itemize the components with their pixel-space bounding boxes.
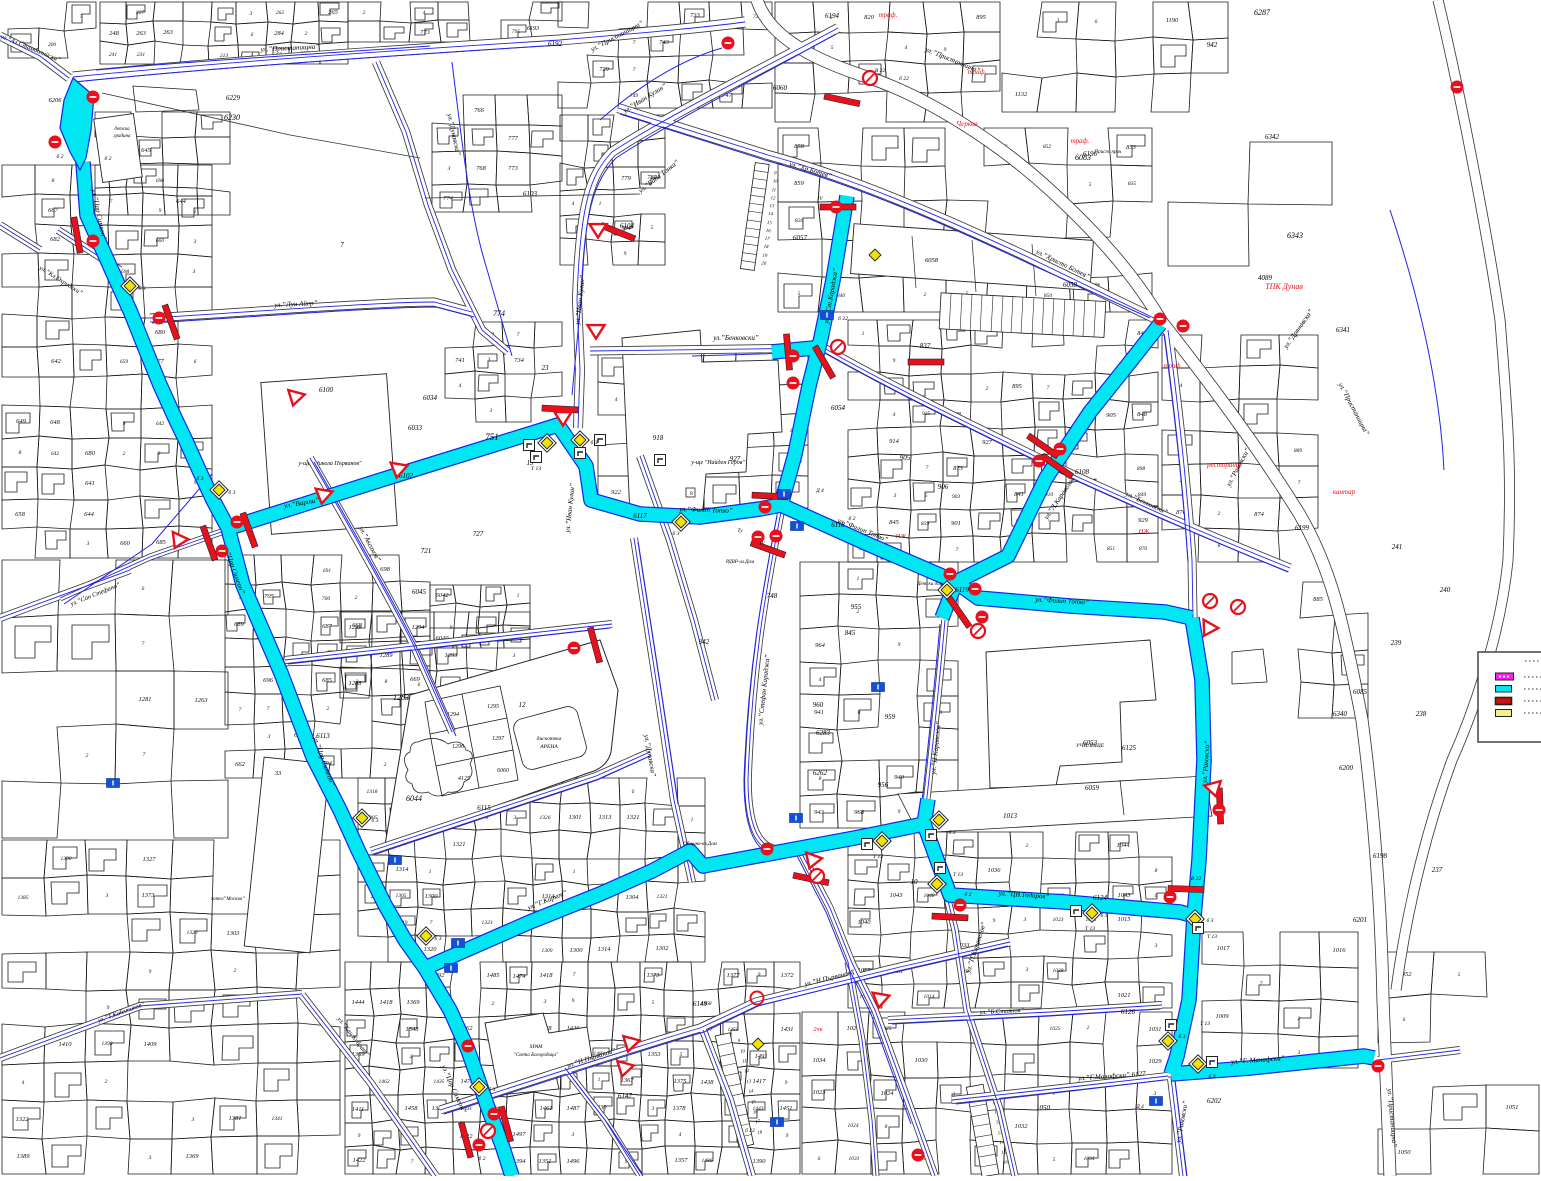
svg-text:927: 927 — [982, 439, 993, 446]
svg-text:Д 4: Д 4 — [1135, 1103, 1144, 1110]
svg-text:6340: 6340 — [1333, 710, 1348, 718]
svg-text:3: 3 — [543, 999, 547, 1005]
svg-text:б 3: б 3 — [1209, 1073, 1216, 1080]
svg-text:859: 859 — [794, 180, 805, 187]
svg-text:1411: 1411 — [352, 1106, 365, 1113]
svg-text:9: 9 — [898, 642, 901, 648]
svg-text:1032: 1032 — [1015, 1123, 1029, 1130]
svg-text:9: 9 — [107, 1005, 110, 1011]
svg-text:1418: 1418 — [540, 972, 554, 979]
svg-text:2: 2 — [305, 31, 308, 37]
svg-text:3: 3 — [1023, 917, 1027, 923]
svg-text:263: 263 — [163, 29, 174, 36]
svg-text:685: 685 — [322, 677, 333, 684]
svg-text:698: 698 — [380, 566, 391, 573]
svg-text:1: 1 — [194, 209, 197, 215]
svg-text:3: 3 — [105, 893, 109, 899]
svg-text:959: 959 — [885, 713, 896, 721]
svg-text:733: 733 — [690, 12, 701, 19]
svg-text:6: 6 — [632, 789, 635, 795]
svg-text:8: 8 — [885, 1124, 888, 1130]
svg-text:4: 4 — [893, 411, 896, 418]
svg-text:3: 3 — [447, 166, 451, 172]
svg-text:852: 852 — [1043, 144, 1052, 150]
svg-text:1305: 1305 — [396, 893, 407, 899]
svg-text:1373: 1373 — [142, 892, 156, 899]
svg-text:б 3: б 3 — [1101, 912, 1108, 919]
svg-text:3: 3 — [489, 408, 493, 414]
svg-text:1295: 1295 — [487, 704, 499, 710]
svg-text:903: 903 — [952, 494, 961, 500]
svg-text:1385: 1385 — [18, 895, 29, 901]
svg-text:3: 3 — [1154, 943, 1158, 949]
svg-text:1314: 1314 — [598, 946, 612, 953]
svg-text:9: 9 — [358, 1133, 361, 1139]
svg-text:Д 4: Д 4 — [815, 487, 824, 494]
svg-text:6192: 6192 — [548, 40, 563, 48]
svg-text:231: 231 — [137, 52, 146, 58]
svg-text:238: 238 — [1416, 710, 1427, 718]
svg-text:1038: 1038 — [1053, 968, 1064, 974]
svg-text:5: 5 — [1089, 182, 1092, 188]
svg-text:6104: 6104 — [620, 222, 635, 230]
svg-text:1025: 1025 — [1050, 1026, 1061, 1032]
svg-text:1375: 1375 — [674, 1078, 688, 1085]
svg-text:б 2: б 2 — [57, 153, 64, 160]
svg-text:6060: 6060 — [497, 768, 509, 774]
svg-text:1190: 1190 — [1166, 17, 1179, 24]
svg-text:648: 648 — [50, 419, 61, 426]
svg-text:4: 4 — [572, 200, 575, 207]
svg-text:649: 649 — [16, 418, 27, 425]
svg-text:644: 644 — [176, 198, 187, 205]
svg-text:1409: 1409 — [144, 1041, 158, 1048]
svg-text:658: 658 — [15, 511, 26, 518]
svg-text:1474: 1474 — [513, 973, 527, 980]
svg-text:траф.: траф. — [1071, 137, 1090, 145]
svg-text:1: 1 — [598, 1077, 601, 1083]
svg-text:6149: 6149 — [693, 1000, 708, 1008]
svg-text:8: 8 — [52, 178, 55, 184]
svg-text:1029: 1029 — [1149, 1058, 1163, 1065]
svg-text:6042: 6042 — [436, 592, 450, 599]
svg-text:2: 2 — [1026, 843, 1029, 849]
svg-text:10: 10 — [911, 878, 919, 886]
svg-text:751: 751 — [485, 432, 499, 442]
svg-text:1288: 1288 — [349, 680, 363, 687]
svg-text:Т 13: Т 13 — [873, 854, 883, 860]
svg-text:4: 4 — [423, 9, 426, 16]
svg-text:Т 13: Т 13 — [1207, 934, 1217, 940]
svg-text:1462: 1462 — [379, 1078, 390, 1085]
svg-text:градина: градина — [114, 134, 131, 139]
svg-text:6: 6 — [818, 1156, 821, 1162]
svg-text:1: 1 — [517, 593, 520, 599]
svg-text:1327: 1327 — [143, 856, 157, 863]
svg-text:Детски дом: Детски дом — [916, 582, 943, 587]
svg-text:4: 4 — [459, 382, 462, 389]
svg-text:682: 682 — [50, 236, 61, 243]
svg-text:6115: 6115 — [477, 804, 491, 812]
svg-text:4: 4 — [615, 396, 618, 403]
svg-text:858: 858 — [794, 143, 805, 150]
svg-text:905: 905 — [1106, 412, 1117, 419]
svg-text:4: 4 — [905, 44, 908, 51]
svg-text:б 3: б 3 — [591, 439, 598, 446]
svg-text:1309: 1309 — [542, 948, 553, 954]
svg-text:1016: 1016 — [1333, 947, 1347, 954]
svg-text:1461: 1461 — [540, 1105, 553, 1112]
svg-text:6054: 6054 — [831, 404, 846, 412]
svg-text:6343: 6343 — [1287, 231, 1303, 240]
svg-text:1031: 1031 — [849, 1156, 860, 1162]
svg-text:1418: 1418 — [380, 999, 394, 1006]
svg-text:Община-кв.Дом: Община-кв.Дом — [683, 842, 717, 847]
svg-text:1024: 1024 — [881, 1090, 895, 1097]
svg-text:ХРАМ: ХРАМ — [529, 1045, 544, 1050]
svg-text:6262: 6262 — [813, 769, 828, 777]
svg-text:1: 1 — [599, 201, 602, 207]
svg-text:667: 667 — [48, 207, 59, 214]
svg-text:7: 7 — [80, 14, 83, 20]
svg-text:6119: 6119 — [955, 586, 969, 594]
svg-text:1034: 1034 — [1084, 1155, 1095, 1162]
svg-text:4089: 4089 — [1258, 274, 1273, 282]
svg-text:922: 922 — [611, 489, 622, 496]
svg-text:2: 2 — [410, 1054, 413, 1060]
svg-text:6034: 6034 — [423, 394, 438, 402]
svg-text:6: 6 — [418, 682, 421, 688]
svg-text:6060: 6060 — [773, 84, 788, 92]
svg-text:748: 748 — [767, 592, 778, 600]
svg-text:6044: 6044 — [406, 794, 422, 803]
svg-text:889: 889 — [1294, 448, 1303, 454]
svg-text:дискотека: дискотека — [537, 735, 562, 742]
svg-text:239: 239 — [1391, 639, 1402, 647]
svg-text:2: 2 — [986, 386, 989, 392]
svg-text:3: 3 — [191, 1117, 195, 1123]
svg-text:773: 773 — [508, 165, 519, 172]
svg-text:IV: IV — [816, 196, 823, 202]
svg-text:6057: 6057 — [793, 234, 808, 242]
svg-text:721: 721 — [421, 547, 432, 555]
svg-text:1341: 1341 — [272, 1115, 283, 1122]
svg-text:1496: 1496 — [567, 1158, 581, 1165]
svg-text:б 22: б 22 — [838, 315, 848, 322]
svg-text:б 2: б 2 — [849, 515, 856, 522]
svg-text:1323: 1323 — [482, 920, 493, 926]
svg-text:8: 8 — [385, 679, 388, 685]
svg-text:1373: 1373 — [647, 972, 661, 979]
svg-text:б 3: б 3 — [435, 935, 442, 942]
svg-text:4: 4 — [22, 1079, 25, 1086]
svg-text:1410: 1410 — [59, 1041, 73, 1048]
svg-text:7: 7 — [956, 547, 959, 553]
svg-text:841: 841 — [1014, 491, 1024, 498]
svg-text:6117: 6117 — [633, 512, 647, 520]
svg-text:2чк: 2чк — [813, 1026, 823, 1033]
svg-text:6342: 6342 — [1265, 133, 1280, 141]
svg-text:ТПК Дунав: ТПК Дунав — [1265, 282, 1303, 291]
svg-text:906: 906 — [938, 483, 949, 491]
svg-text:641: 641 — [85, 480, 95, 487]
svg-text:2: 2 — [355, 595, 358, 601]
svg-text:6: 6 — [142, 586, 145, 592]
svg-text:1326: 1326 — [540, 815, 551, 821]
svg-text:1491: 1491 — [755, 1053, 768, 1060]
svg-text:200: 200 — [48, 42, 57, 48]
svg-text:3: 3 — [487, 357, 491, 363]
svg-text:б 3: б 3 — [139, 285, 146, 292]
svg-text:227: 227 — [136, 10, 145, 16]
svg-text:6108: 6108 — [1075, 468, 1090, 476]
svg-text:детска: детска — [114, 127, 130, 132]
svg-text:9: 9 — [624, 251, 627, 257]
svg-text:6045: 6045 — [412, 588, 427, 596]
svg-text:845: 845 — [845, 629, 856, 637]
svg-text:АРЕНА: АРЕНА — [539, 744, 558, 750]
svg-text:237: 237 — [1432, 866, 1443, 874]
svg-text:734: 734 — [514, 357, 525, 364]
svg-text:Т 13: Т 13 — [531, 466, 541, 472]
svg-text:7: 7 — [573, 972, 576, 978]
svg-text:6198: 6198 — [1373, 852, 1388, 860]
svg-text:955: 955 — [851, 603, 862, 611]
svg-text:660: 660 — [120, 540, 131, 547]
svg-text:1034: 1034 — [813, 1057, 827, 1064]
svg-text:691: 691 — [323, 568, 332, 574]
svg-text:1299: 1299 — [349, 624, 363, 631]
svg-text:2: 2 — [492, 1001, 495, 1007]
svg-text:7: 7 — [1298, 480, 1301, 486]
svg-text:927: 927 — [730, 455, 741, 463]
svg-text:914: 914 — [889, 438, 900, 445]
svg-text:б 2: б 2 — [965, 891, 972, 898]
svg-text:5: 5 — [1053, 1157, 1056, 1163]
svg-text:795: 795 — [512, 29, 521, 35]
svg-text:1: 1 — [429, 869, 432, 875]
svg-text:918: 918 — [653, 434, 664, 442]
svg-text:766: 766 — [474, 107, 485, 114]
svg-text:1023: 1023 — [813, 1089, 827, 1096]
svg-text:3: 3 — [1025, 967, 1029, 973]
svg-text:851: 851 — [1107, 546, 1116, 552]
svg-text:7: 7 — [239, 707, 242, 713]
svg-text:8: 8 — [858, 710, 861, 716]
svg-text:6124: 6124 — [1093, 894, 1108, 902]
svg-text:7: 7 — [1047, 385, 1050, 391]
svg-text:1321: 1321 — [657, 894, 668, 900]
svg-text:1381: 1381 — [229, 1115, 242, 1122]
svg-text:1321: 1321 — [453, 841, 466, 848]
svg-text:3: 3 — [148, 1155, 152, 1161]
svg-text:895: 895 — [1012, 383, 1023, 390]
svg-text:9: 9 — [158, 451, 161, 457]
svg-text:6: 6 — [1155, 893, 1158, 899]
svg-text:б 2: б 2 — [479, 1155, 486, 1162]
svg-text:645: 645 — [141, 147, 152, 154]
svg-text:2: 2 — [234, 968, 237, 974]
svg-text:6: 6 — [1403, 1017, 1406, 1023]
svg-text:956: 956 — [878, 781, 889, 789]
svg-text:284: 284 — [274, 30, 285, 37]
svg-text:4: 4 — [1180, 382, 1183, 389]
svg-text:2: 2 — [86, 753, 89, 759]
svg-text:23: 23 — [542, 364, 550, 372]
svg-text:263: 263 — [136, 30, 147, 37]
svg-text:644: 644 — [84, 511, 95, 518]
svg-text:3: 3 — [513, 815, 517, 821]
svg-text:660: 660 — [156, 238, 165, 244]
svg-text:2: 2 — [327, 706, 330, 712]
svg-text:874: 874 — [1254, 511, 1265, 518]
svg-text:6: 6 — [1095, 19, 1098, 25]
svg-text:1014: 1014 — [924, 993, 935, 1000]
svg-text:ул.”Бенковски”: ул.”Бенковски” — [712, 334, 759, 342]
svg-text:б 3: б 3 — [372, 817, 379, 824]
svg-text:9: 9 — [993, 918, 996, 924]
svg-text:9: 9 — [572, 998, 575, 1004]
svg-text:876: 876 — [1139, 546, 1148, 552]
svg-text:6033: 6033 — [408, 424, 423, 432]
svg-text:6058: 6058 — [925, 257, 939, 264]
svg-text:1390: 1390 — [61, 856, 72, 862]
svg-text:5: 5 — [925, 493, 928, 499]
svg-text:у-ще "Никола Първанов": у-ще "Никола Първанов" — [297, 461, 362, 467]
svg-text:В 22: В 22 — [1191, 876, 1201, 882]
svg-text:6230: 6230 — [224, 113, 240, 122]
svg-text:1: 1 — [857, 576, 860, 582]
svg-text:1398: 1398 — [102, 1041, 113, 1047]
svg-text:925: 925 — [922, 411, 931, 417]
svg-text:1043: 1043 — [890, 892, 904, 899]
svg-text:1050: 1050 — [1398, 1149, 1412, 1156]
svg-text:659: 659 — [120, 359, 129, 365]
svg-text:960: 960 — [813, 701, 824, 709]
svg-text:1: 1 — [862, 331, 865, 337]
svg-text:9: 9 — [786, 1133, 789, 1139]
svg-text:1497: 1497 — [513, 1131, 527, 1138]
svg-text:7: 7 — [1260, 981, 1263, 987]
svg-text:1293: 1293 — [445, 652, 459, 659]
svg-text:траф.: траф. — [968, 68, 987, 76]
svg-text:5: 5 — [1458, 972, 1461, 978]
svg-text:1044: 1044 — [1117, 842, 1131, 849]
svg-text:6059: 6059 — [1085, 784, 1100, 792]
svg-text:743: 743 — [659, 39, 670, 46]
svg-text:б 22: б 22 — [899, 75, 909, 82]
svg-text:1024: 1024 — [848, 1122, 859, 1129]
svg-text:Т 13: Т 13 — [953, 872, 963, 878]
svg-text:1263: 1263 — [195, 697, 209, 704]
svg-text:262: 262 — [276, 10, 285, 16]
svg-text:2: 2 — [363, 10, 366, 16]
svg-text:Т 13: Т 13 — [1200, 1021, 1210, 1027]
svg-text:248: 248 — [109, 30, 120, 37]
svg-text:б 2: б 2 — [105, 155, 112, 162]
svg-text:7: 7 — [517, 332, 520, 338]
svg-text:1294: 1294 — [412, 624, 426, 631]
svg-text:941: 941 — [814, 709, 824, 716]
svg-text:4: 4 — [819, 676, 822, 683]
svg-text:895: 895 — [976, 14, 987, 21]
svg-text:1297: 1297 — [492, 736, 505, 742]
svg-text:240: 240 — [1440, 586, 1451, 594]
svg-text:7: 7 — [411, 1159, 414, 1165]
svg-text:705: 705 — [264, 593, 275, 600]
svg-text:1281: 1281 — [139, 696, 152, 703]
svg-text:3: 3 — [86, 541, 90, 547]
svg-text:3: 3 — [267, 734, 271, 740]
svg-text:642: 642 — [156, 420, 165, 427]
svg-text:1353: 1353 — [648, 1051, 662, 1058]
svg-text:1313: 1313 — [599, 814, 613, 821]
svg-text:3: 3 — [512, 653, 516, 659]
svg-text:3: 3 — [192, 269, 196, 275]
svg-text:траф: траф — [1163, 362, 1180, 370]
svg-text:1438: 1438 — [701, 1079, 715, 1086]
svg-text:7: 7 — [633, 67, 636, 73]
svg-text:7: 7 — [633, 40, 636, 46]
svg-text:1458: 1458 — [405, 1105, 419, 1112]
svg-text:942: 942 — [1207, 41, 1218, 49]
svg-text:885: 885 — [1313, 596, 1324, 603]
svg-text:1023: 1023 — [1053, 917, 1064, 923]
svg-text:9: 9 — [893, 358, 896, 364]
svg-text:1302: 1302 — [656, 945, 670, 952]
svg-text:1051: 1051 — [1506, 1104, 1519, 1111]
svg-text:6147: 6147 — [618, 1092, 633, 1100]
svg-text:2: 2 — [384, 762, 387, 768]
svg-text:3: 3 — [249, 11, 253, 17]
svg-text:3: 3 — [893, 493, 897, 499]
svg-text:б 3: б 3 — [1207, 917, 1214, 924]
svg-text:768: 768 — [476, 165, 487, 172]
svg-text:1378: 1378 — [673, 1105, 687, 1112]
svg-text:4: 4 — [679, 1131, 682, 1138]
svg-text:9: 9 — [159, 208, 162, 214]
svg-text:траф.: траф. — [879, 11, 898, 19]
svg-text:6229: 6229 — [226, 94, 241, 102]
svg-text:1320: 1320 — [424, 946, 438, 953]
svg-text:943: 943 — [814, 809, 825, 816]
svg-text:1390: 1390 — [753, 1158, 767, 1165]
svg-text:1451: 1451 — [780, 1105, 793, 1112]
svg-text:б 3: б 3 — [673, 530, 680, 537]
svg-text:2: 2 — [1298, 1016, 1301, 1022]
svg-text:б 3: б 3 — [1179, 1033, 1186, 1040]
svg-text:6100: 6100 — [319, 386, 334, 394]
svg-text:1303: 1303 — [227, 930, 241, 937]
svg-text:2: 2 — [1218, 511, 1221, 517]
svg-text:773: 773 — [420, 29, 431, 36]
svg-text:729: 729 — [599, 66, 610, 73]
svg-text:8: 8 — [690, 491, 693, 497]
svg-text:1422: 1422 — [353, 1157, 367, 1164]
svg-text:1369: 1369 — [186, 1153, 200, 1160]
svg-text:6194: 6194 — [825, 12, 840, 20]
svg-text:820: 820 — [864, 14, 875, 21]
svg-text:НЖ: НЖ — [895, 533, 908, 540]
svg-text:826: 826 — [795, 218, 804, 224]
svg-text:662: 662 — [235, 761, 246, 768]
svg-text:680: 680 — [85, 450, 96, 457]
svg-text:2: 2 — [1087, 1025, 1090, 1031]
svg-text:9: 9 — [785, 1080, 788, 1086]
svg-text:698: 698 — [121, 269, 130, 275]
svg-text:6: 6 — [251, 32, 254, 38]
svg-text:6: 6 — [194, 359, 197, 365]
